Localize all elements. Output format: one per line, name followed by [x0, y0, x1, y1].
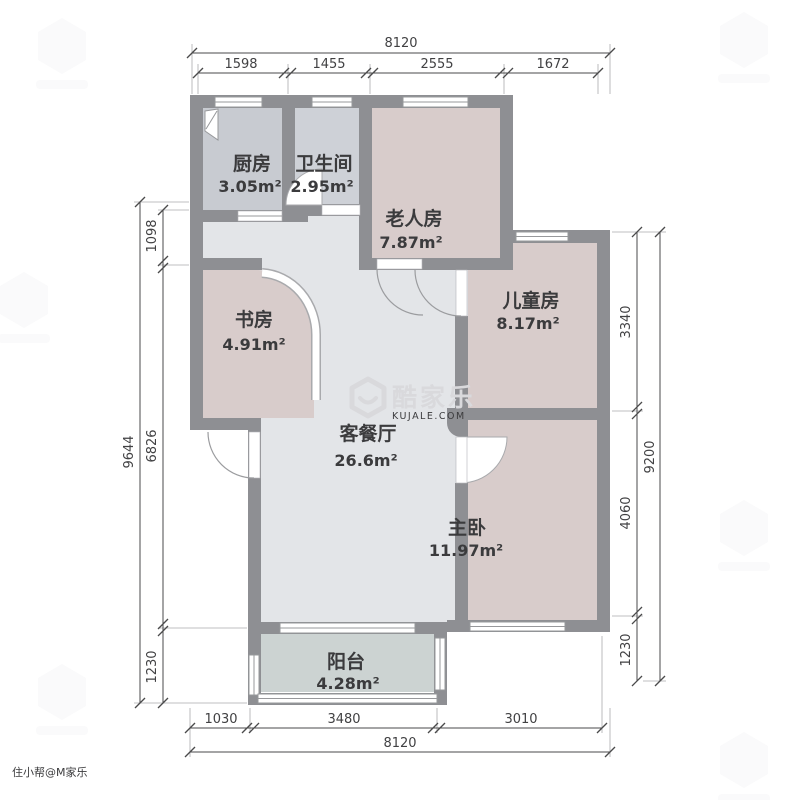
dim-right-seg0: 3340 [619, 305, 634, 338]
elder-room-window [403, 97, 468, 107]
dim-top-seg0: 1598 [224, 57, 257, 72]
dim-left-seg1: 6826 [145, 429, 160, 462]
wall [190, 258, 262, 270]
room-balcony-name: 阳台 [327, 650, 365, 673]
floorplan-canvas: 酷家乐 KUJALE.COM 厨房 3.05m² 卫生间 2.95m² 老人房 … [0, 0, 800, 800]
balcony-right-window [435, 638, 445, 690]
watermark-brand-text: 酷家乐 [392, 383, 476, 412]
dim-bottom-seg2: 3010 [504, 712, 537, 727]
kitchen-sliding-door [238, 211, 282, 221]
room-elder-area: 7.87m² [379, 233, 442, 252]
bathroom-window [312, 97, 352, 107]
master-bedroom-window [470, 622, 565, 631]
balcony-bottom-window [258, 694, 437, 703]
room-balcony-area: 4.28m² [316, 674, 379, 693]
room-living-area: 26.6m² [334, 451, 397, 470]
wall [190, 418, 258, 430]
balcony-left-window [249, 655, 259, 695]
dim-top-seg2: 2555 [420, 57, 453, 72]
kitchen-window [215, 97, 262, 107]
dim-right-seg2: 1230 [619, 633, 634, 666]
corner-watermark-text: 住小帮@M家乐 [12, 765, 88, 779]
room-master-area: 11.97m² [429, 541, 503, 560]
room-living-name: 客餐厅 [339, 422, 396, 445]
watermark-site-text: KUJALE.COM [392, 411, 466, 422]
dim-bottom-seg0: 1030 [204, 712, 237, 727]
dim-bottom-seg1: 3480 [327, 712, 360, 727]
room-kids-name: 儿童房 [501, 289, 559, 312]
dim-left-seg0: 1098 [145, 219, 160, 252]
wall [359, 108, 372, 270]
floorplan-svg: 酷家乐 KUJALE.COM 厨房 3.05m² 卫生间 2.95m² 老人房 … [0, 0, 800, 800]
room-study-name: 书房 [235, 308, 273, 331]
room-master-name: 主卧 [448, 517, 486, 539]
room-study-area: 4.91m² [222, 335, 285, 354]
dim-left-total: 9644 [122, 435, 137, 468]
room-kitchen-name: 厨房 [233, 152, 271, 175]
dim-right-seg1: 4060 [619, 496, 634, 529]
dim-right-total: 9200 [643, 440, 658, 473]
wall [500, 95, 513, 270]
room-bathroom-area: 2.95m² [290, 177, 353, 196]
room-bathroom-name: 卫生间 [295, 152, 352, 175]
dim-top-total: 8120 [384, 36, 417, 51]
room-elder-name: 老人房 [385, 207, 442, 230]
dim-top-seg3: 1672 [536, 57, 569, 72]
kids-room-window [516, 232, 568, 241]
room-kitchen-area: 3.05m² [218, 177, 281, 196]
dim-left-seg2: 1230 [145, 650, 160, 683]
wall [455, 408, 597, 420]
wall [597, 230, 610, 632]
room-kids-area: 8.17m² [496, 314, 559, 333]
balcony-sliding-window [280, 623, 415, 633]
dim-bottom-total: 8120 [383, 736, 416, 751]
dim-top-seg1: 1455 [312, 57, 345, 72]
